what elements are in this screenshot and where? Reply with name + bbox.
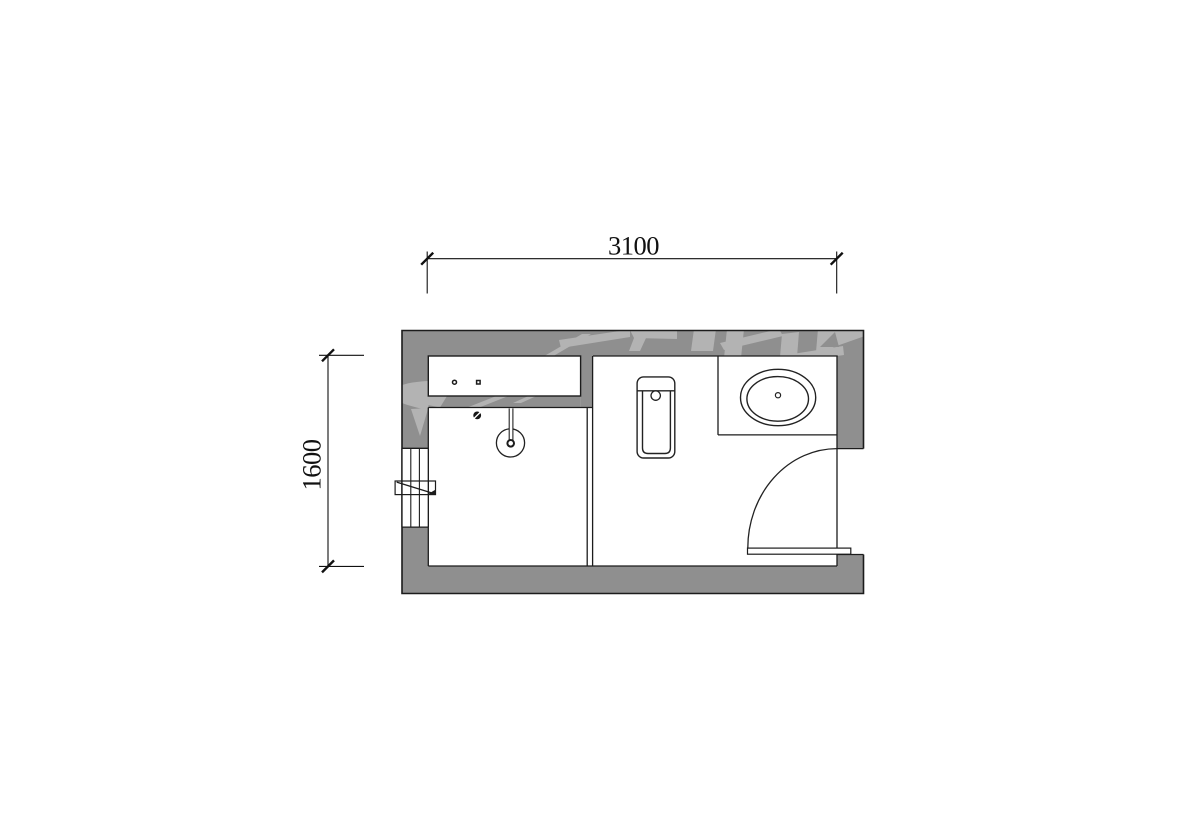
svg-text:3100: 3100 [608, 231, 659, 261]
svg-text:1600: 1600 [297, 439, 327, 490]
